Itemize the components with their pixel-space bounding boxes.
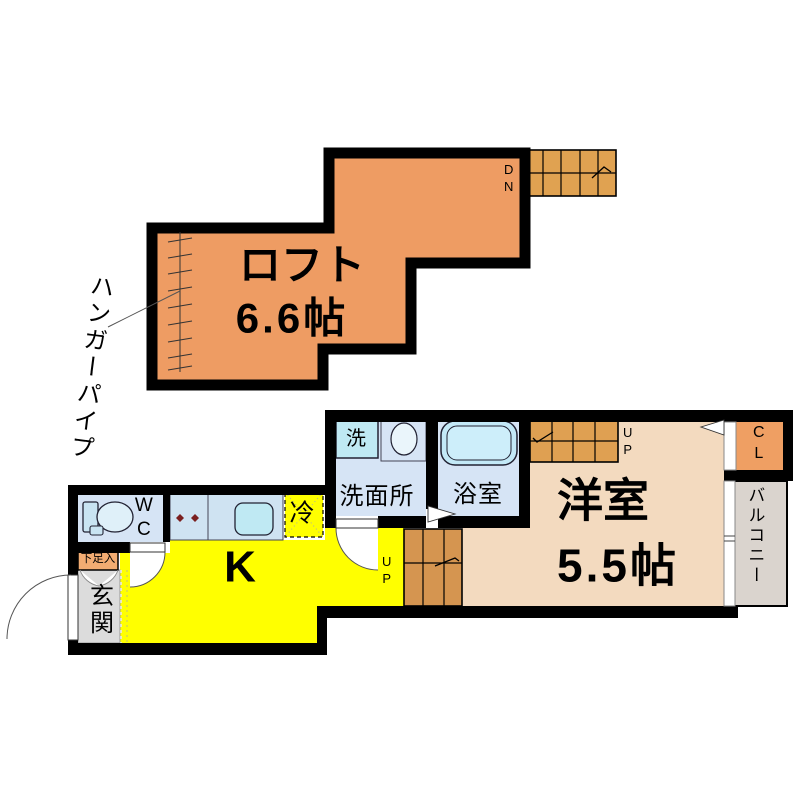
bottom-right-wall: [317, 606, 738, 618]
loft-dn-stairs: [525, 150, 616, 196]
lower-stairs-label: UP: [380, 554, 393, 588]
bath-right-wall: [519, 410, 530, 528]
loft-stairs-label: DN: [502, 162, 515, 196]
toilet-bottom-wall: [68, 542, 130, 553]
loft-room-size: 6.6帖: [236, 298, 348, 341]
apartment-floor-plan: ロフト 6.6帖 DN ハンガーパイプ 洋室 5.5帖 K 冷 WC 洗 洗面所…: [0, 0, 800, 800]
bathroom-label: 浴室: [453, 483, 503, 507]
bathtub-icon: [441, 421, 517, 465]
balcony-window: [724, 481, 735, 606]
refrigerator-label: 冷: [289, 501, 314, 527]
washroom-left-wall: [325, 410, 336, 528]
bath-divider-wall: [426, 410, 438, 509]
bottom-left-wall: [68, 643, 327, 655]
left-outer-wall-upper: [68, 485, 78, 575]
entrance-label: 玄関: [86, 583, 110, 637]
toilet-label: WC: [134, 495, 153, 543]
upper-stairs: [530, 420, 618, 462]
lower-stairs: [404, 529, 462, 606]
closet-door-strip: [724, 422, 736, 470]
washing-machine-label: 洗: [346, 429, 366, 449]
washroom-label: 洗面所: [340, 485, 415, 509]
upper-stairs-label: UP: [621, 425, 634, 459]
entrance-door: [7, 575, 78, 640]
western-room-label: 洋室: [557, 478, 649, 525]
floor-plan-drawing: [0, 0, 800, 800]
toilet-right-wall: [163, 495, 170, 542]
kitchen-top-wall: [68, 485, 336, 495]
closet-bottom-wall: [724, 470, 793, 481]
closet-label: CL: [750, 424, 766, 466]
kitchen-sink-icon: [235, 503, 273, 535]
western-room-size: 5.5帖: [557, 543, 679, 590]
shoe-cabinet-label: 下足入: [81, 554, 116, 566]
kitchen-label: K: [224, 546, 256, 591]
bath-bottom-wall: [438, 516, 530, 528]
wash-basin-icon: [381, 418, 426, 461]
washroom-bottom-wall: [378, 516, 426, 528]
loft-room-label: ロフト: [239, 245, 365, 288]
balcony-label: バルコニー: [746, 486, 763, 586]
